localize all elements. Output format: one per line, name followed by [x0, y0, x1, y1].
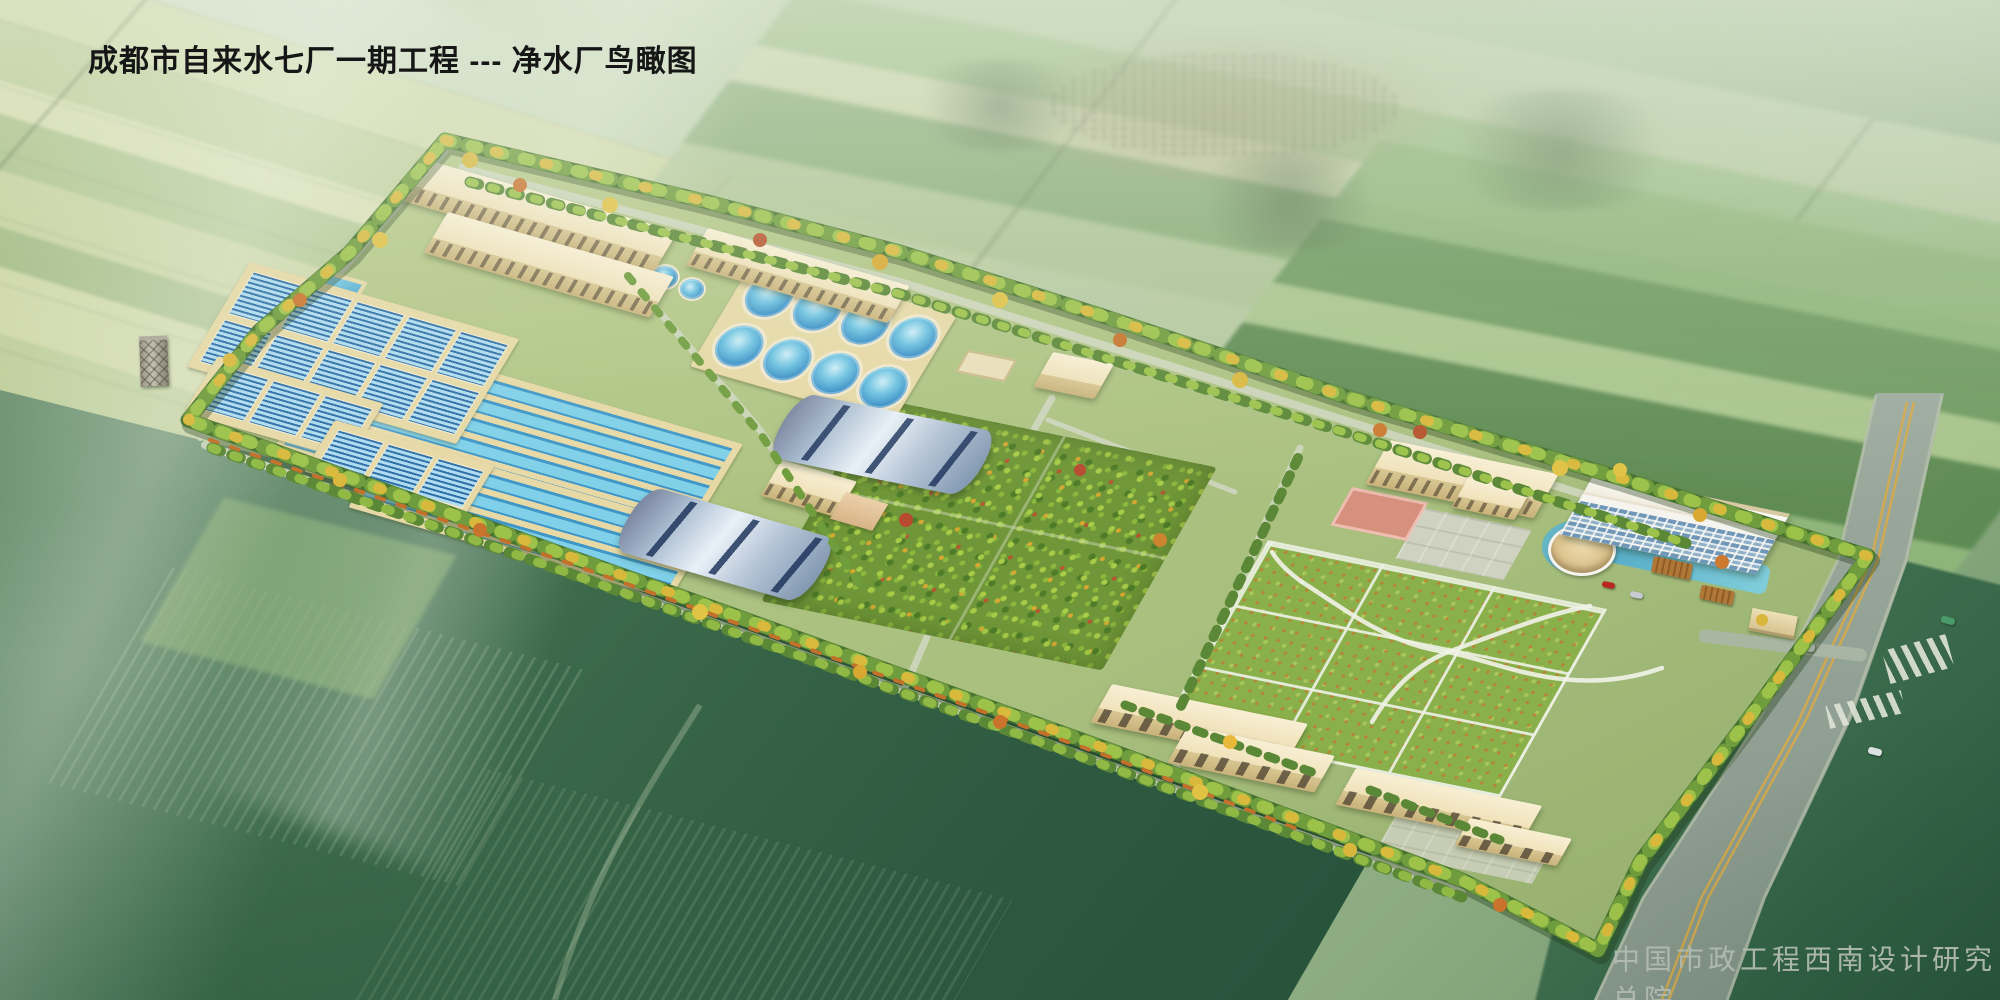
perimeter-tree-belt-light — [188, 140, 1868, 950]
lawn-curved-paths — [1272, 552, 1662, 722]
vegetation-layer — [0, 0, 2000, 1000]
tree-row-northeast — [470, 182, 1688, 544]
design-institute-credit: 中国市政工程西南设计研究总院 — [1612, 938, 2000, 1000]
page-title: 成都市自来水七厂一期工程 --- 净水厂鸟瞰图 — [88, 36, 698, 80]
perimeter-tree-belt-shadow — [191, 145, 1871, 955]
rendering-canvas: 成都市自来水七厂一期工程 --- 净水厂鸟瞰图 中国市政工程西南设计研究总院 — [0, 0, 2000, 1000]
tree-row-lawn-west — [1180, 458, 1298, 708]
perimeter-tree-belt-gold — [188, 140, 1868, 950]
perimeter-tree-belt — [188, 140, 1868, 950]
perimeter-tree-belt-bright — [188, 140, 1868, 950]
tree-row-basins-east — [628, 276, 862, 588]
